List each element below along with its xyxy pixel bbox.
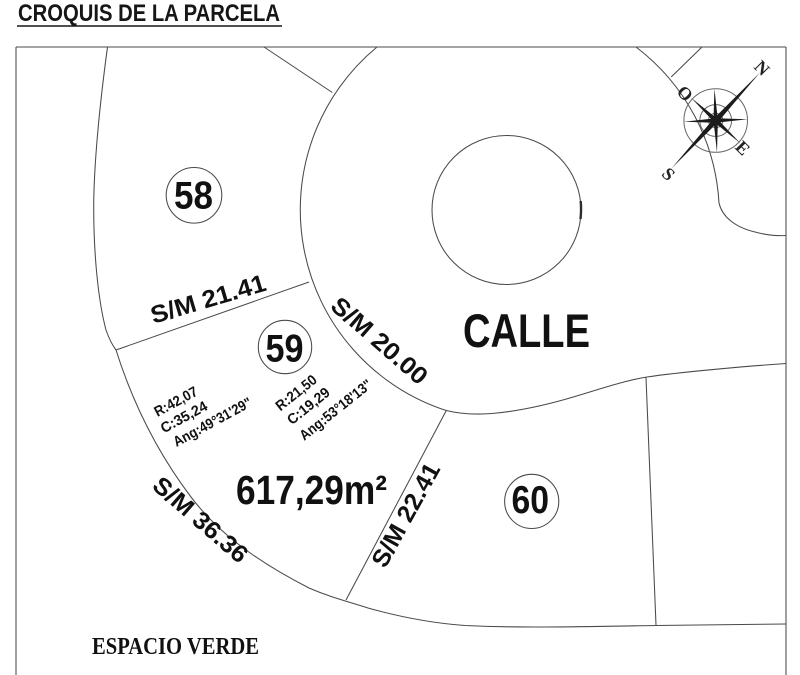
svg-text:617,29m²: 617,29m² — [236, 467, 387, 513]
svg-text:60: 60 — [512, 479, 550, 522]
svg-text:CROQUIS DE LA PARCELA: CROQUIS DE LA PARCELA — [18, 0, 280, 27]
svg-text:ESPACIO VERDE: ESPACIO VERDE — [92, 634, 259, 660]
svg-text:CALLE: CALLE — [463, 304, 590, 357]
svg-text:58: 58 — [174, 175, 213, 218]
svg-text:59: 59 — [266, 328, 304, 371]
